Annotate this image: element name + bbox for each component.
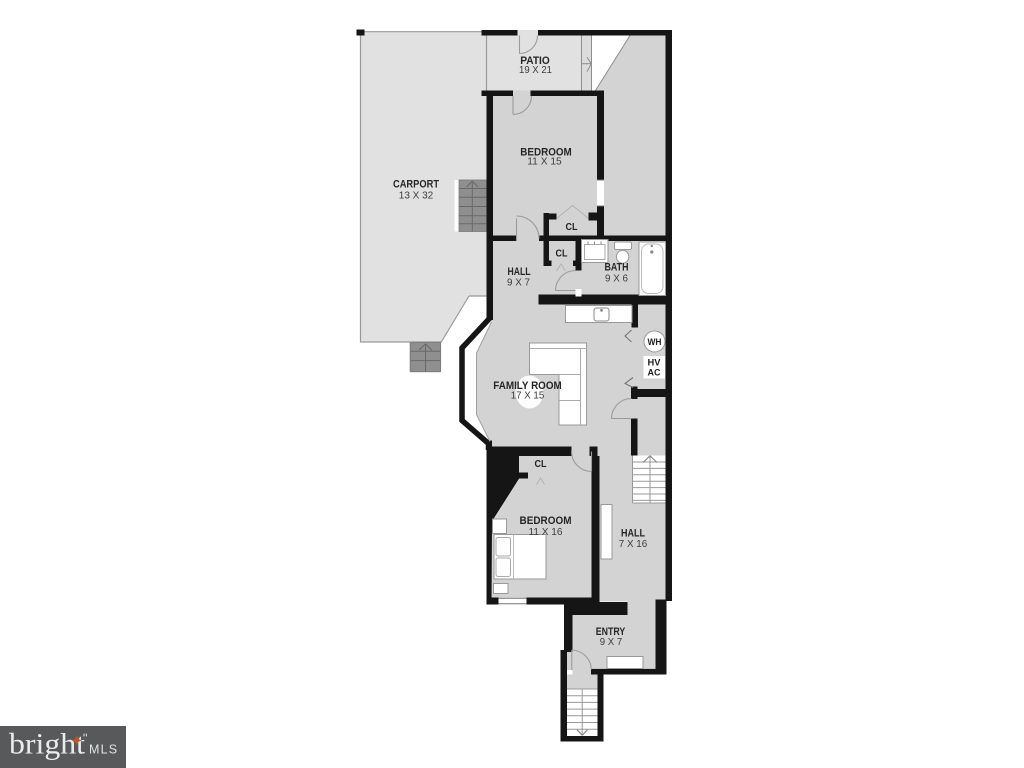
svg-text:9 X 7: 9 X 7 (600, 636, 623, 648)
svg-text:7 X 16: 7 X 16 (619, 538, 648, 550)
svg-text:CL: CL (556, 249, 568, 260)
svg-text:13 X 32: 13 X 32 (399, 189, 434, 201)
svg-text:MLS: MLS (89, 743, 118, 757)
svg-text:17 X 15: 17 X 15 (511, 389, 545, 401)
svg-text:bright: bright (9, 729, 86, 761)
svg-text:CL: CL (535, 459, 547, 470)
svg-text:9 X 6: 9 X 6 (605, 273, 628, 285)
svg-text:19 X 21: 19 X 21 (519, 64, 552, 76)
svg-text:9 X 7: 9 X 7 (507, 276, 530, 288)
svg-text:11 X 16: 11 X 16 (529, 526, 563, 538)
svg-text:WH: WH (648, 337, 662, 347)
svg-text:11 X 15: 11 X 15 (527, 156, 562, 168)
svg-text:AC: AC (648, 368, 661, 379)
svg-text:CL: CL (566, 222, 578, 233)
